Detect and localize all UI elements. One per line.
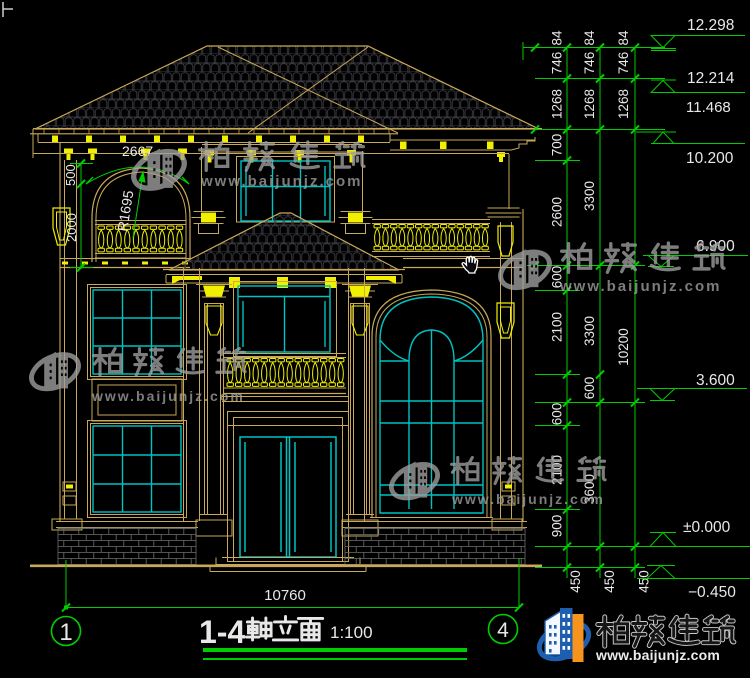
svg-text:4: 4 (497, 619, 509, 642)
svg-text:2000: 2000 (64, 213, 79, 242)
svg-text:500: 500 (63, 164, 78, 186)
svg-text:1-4: 1-4 (199, 614, 245, 650)
svg-text:450: 450 (637, 570, 652, 593)
svg-text:600: 600 (550, 403, 565, 426)
svg-text:600: 600 (582, 377, 597, 400)
svg-text:450: 450 (568, 570, 583, 593)
svg-text:10.200: 10.200 (686, 150, 734, 167)
svg-text:11.468: 11.468 (686, 99, 731, 116)
svg-text:www.baijunjz.com: www.baijunjz.com (451, 491, 605, 507)
svg-text:1268: 1268 (582, 89, 597, 119)
svg-text:±0.000: ±0.000 (683, 519, 731, 536)
svg-text:84: 84 (616, 30, 631, 46)
svg-text:www.baijunjz.com: www.baijunjz.com (200, 173, 362, 190)
svg-text:900: 900 (550, 515, 565, 538)
svg-text:3.600: 3.600 (696, 372, 735, 389)
svg-text:www.baijunjz.com: www.baijunjz.com (559, 278, 721, 295)
svg-text:www.baijunjz.com: www.baijunjz.com (91, 388, 245, 404)
svg-text:450: 450 (602, 570, 617, 593)
svg-text:746: 746 (550, 52, 565, 75)
svg-text:3300: 3300 (582, 316, 597, 346)
svg-text:12.298: 12.298 (687, 17, 734, 34)
svg-text:746: 746 (616, 52, 631, 75)
svg-text:10760: 10760 (264, 587, 306, 604)
svg-text:2100: 2100 (550, 312, 565, 342)
svg-text:700: 700 (550, 134, 565, 157)
svg-text:84: 84 (550, 30, 565, 46)
svg-text:84: 84 (582, 30, 597, 46)
svg-text:746: 746 (582, 52, 597, 75)
svg-text:1:100: 1:100 (330, 623, 373, 642)
svg-text:www.baijunjz.com: www.baijunjz.com (595, 647, 720, 663)
svg-text:10200: 10200 (616, 328, 631, 366)
svg-text:1268: 1268 (550, 89, 565, 119)
svg-text:−0.450: −0.450 (688, 584, 736, 601)
svg-text:1: 1 (59, 619, 72, 646)
svg-text:12.214: 12.214 (687, 70, 735, 87)
svg-text:2600: 2600 (550, 197, 565, 227)
svg-text:1268: 1268 (616, 89, 631, 119)
svg-text:3300: 3300 (582, 181, 597, 211)
